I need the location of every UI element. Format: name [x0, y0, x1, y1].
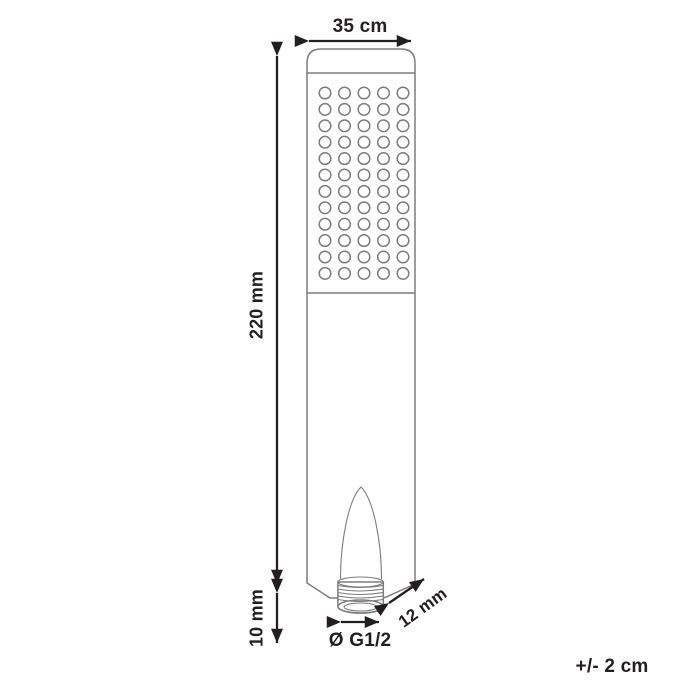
nozzle-hole: [358, 218, 370, 230]
nozzle-hole: [358, 251, 370, 263]
nozzle-hole: [339, 268, 351, 280]
nozzle-hole: [319, 104, 331, 116]
nozzle-hole: [378, 235, 390, 247]
nozzle-hole: [358, 120, 370, 132]
nozzle-hole: [397, 169, 409, 181]
nozzle-hole: [378, 87, 390, 99]
nozzle-hole: [319, 136, 331, 148]
nozzle-hole: [339, 169, 351, 181]
nozzle-hole: [319, 251, 331, 263]
height-dimension-label: 220 mm: [247, 271, 268, 339]
nozzle-hole: [339, 218, 351, 230]
nozzle-hole: [378, 218, 390, 230]
nozzle-hole: [378, 104, 390, 116]
nozzle-hole: [339, 153, 351, 165]
nozzle-hole: [358, 87, 370, 99]
nozzle-hole: [358, 202, 370, 214]
nozzle-hole: [397, 136, 409, 148]
nozzle-hole: [397, 87, 409, 99]
nozzle-hole: [339, 186, 351, 198]
connector-height-dimension-label: 10 mm: [247, 589, 268, 647]
nozzle-hole: [339, 136, 351, 148]
nozzle-hole: [378, 136, 390, 148]
nozzle-hole: [358, 235, 370, 247]
nozzle-hole: [397, 202, 409, 214]
nozzle-hole: [319, 87, 331, 99]
nozzle-hole: [358, 153, 370, 165]
nozzle-hole: [339, 104, 351, 116]
nozzle-hole: [319, 169, 331, 181]
nozzle-hole: [319, 268, 331, 280]
nozzle-hole: [397, 120, 409, 132]
nozzle-hole: [358, 169, 370, 181]
nozzle-hole: [397, 186, 409, 198]
nozzle-hole: [319, 202, 331, 214]
nozzle-hole: [397, 268, 409, 280]
nozzle-hole: [358, 186, 370, 198]
nozzle-hole: [378, 268, 390, 280]
nozzle-hole: [378, 120, 390, 132]
nozzle-hole: [319, 218, 331, 230]
nozzle-hole: [397, 251, 409, 263]
nozzle-hole: [319, 153, 331, 165]
nozzle-hole: [378, 186, 390, 198]
threaded-connector: [338, 577, 383, 613]
nozzle-hole: [358, 104, 370, 116]
thread-diameter-dimension-label: Ø G1/2: [329, 630, 391, 652]
nozzle-hole: [378, 169, 390, 181]
nozzle-hole: [378, 153, 390, 165]
nozzle-hole: [397, 218, 409, 230]
product-dimension-diagram: 35 cm 220 mm 10 mm Ø G1/2 12 mm +/- 2 cm: [0, 0, 700, 700]
nozzle-hole: [358, 268, 370, 280]
nozzle-hole: [378, 251, 390, 263]
nozzle-hole: [397, 153, 409, 165]
nozzle-hole: [397, 104, 409, 116]
nozzle-hole: [339, 202, 351, 214]
nozzle-hole: [339, 87, 351, 99]
width-dimension-label: 35 cm: [333, 16, 388, 38]
nozzle-hole: [319, 186, 331, 198]
nozzle-hole: [319, 235, 331, 247]
nozzle-hole: [339, 235, 351, 247]
nozzle-hole: [339, 251, 351, 263]
nozzle-hole: [339, 120, 351, 132]
nozzle-hole: [358, 136, 370, 148]
diagram-canvas: [0, 0, 700, 700]
tolerance-label: +/- 2 cm: [576, 656, 649, 678]
nozzle-hole: [319, 120, 331, 132]
nozzle-hole: [378, 202, 390, 214]
nozzle-hole: [397, 235, 409, 247]
